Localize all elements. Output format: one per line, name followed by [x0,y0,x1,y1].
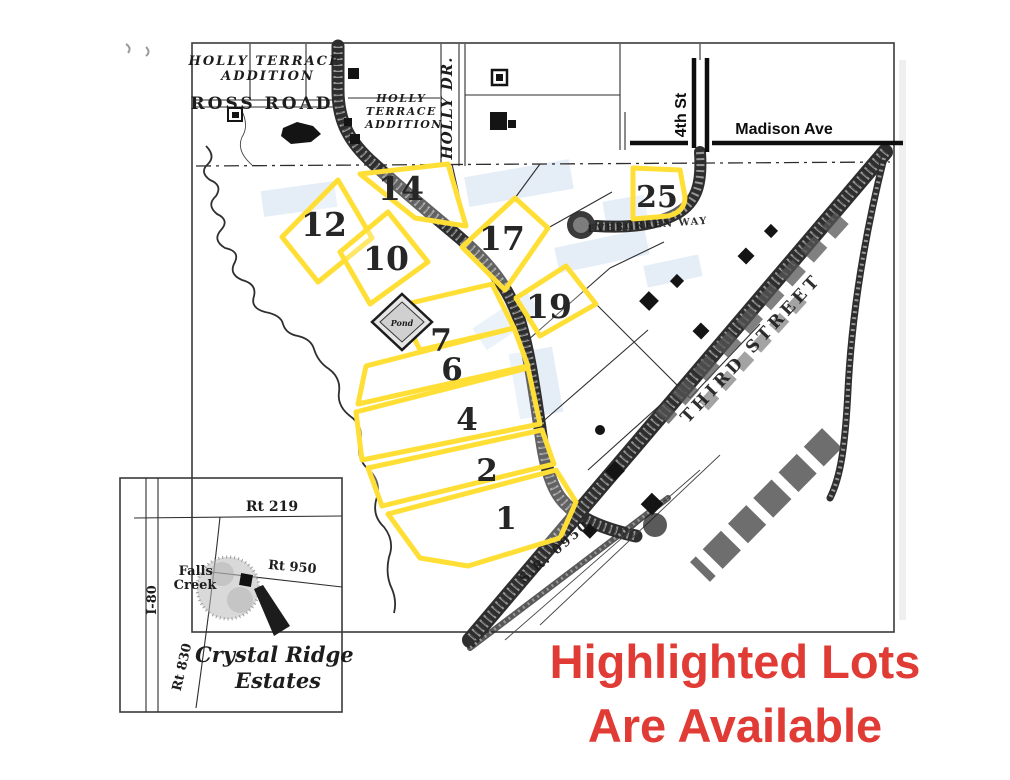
scan-marks [126,44,149,56]
location-arrow-icon [254,585,290,636]
fourth-st-label: 4th St [673,92,690,137]
main-map: Pond 14 12 10 17 25 19 7 6 4 2 1 HOLLY T… [188,43,903,648]
lot-10-label: 10 [363,239,409,278]
availability-note: Highlighted Lots Are Available [505,630,965,758]
location-marker [239,573,253,587]
lot-1-label: 1 [495,501,517,537]
availability-note-line2: Are Available [505,694,965,758]
lot-19-label: 19 [526,287,572,326]
inset-map: Rt 219 Rt 950 Rt 830 I-80 Falls Creek Cr… [120,478,361,712]
lot-4-label: 4 [456,402,478,438]
third-street-label: THIRD STREET [677,270,826,428]
i-80-label: I-80 [145,585,160,615]
lot-14-label: 14 [378,169,424,208]
lot-12-label: 12 [301,205,347,244]
holly-terrace-1-label: HOLLY TERRACE ADDITION [188,54,348,84]
ross-road-label: ROSS ROAD [191,94,334,114]
lot-6-label: 6 [441,352,463,388]
holly-terrace-2-label: HOLLY TERRACE ADDITION [364,92,443,131]
rt-950-label: Rt 950 [268,558,318,577]
lot-17-label: 17 [479,219,525,258]
rt-830-label: Rt 830 [170,642,196,693]
holly-dr-label: HOLLY DR. [438,57,456,161]
crystal-ridge-estates-label: Crystal Ridge Estates [195,642,361,693]
falls-creek-label: Falls Creek [174,564,218,593]
pond-label: Pond [390,318,414,328]
madison-ave-label: Madison Ave [735,121,833,138]
lot-2-label: 2 [476,453,498,489]
rt-219-label: Rt 219 [246,499,298,515]
availability-note-line1: Highlighted Lots [505,630,965,694]
lot-map-flyer: Pond 14 12 10 17 25 19 7 6 4 2 1 HOLLY T… [0,0,1010,780]
lot-25-label: 25 [636,180,678,215]
